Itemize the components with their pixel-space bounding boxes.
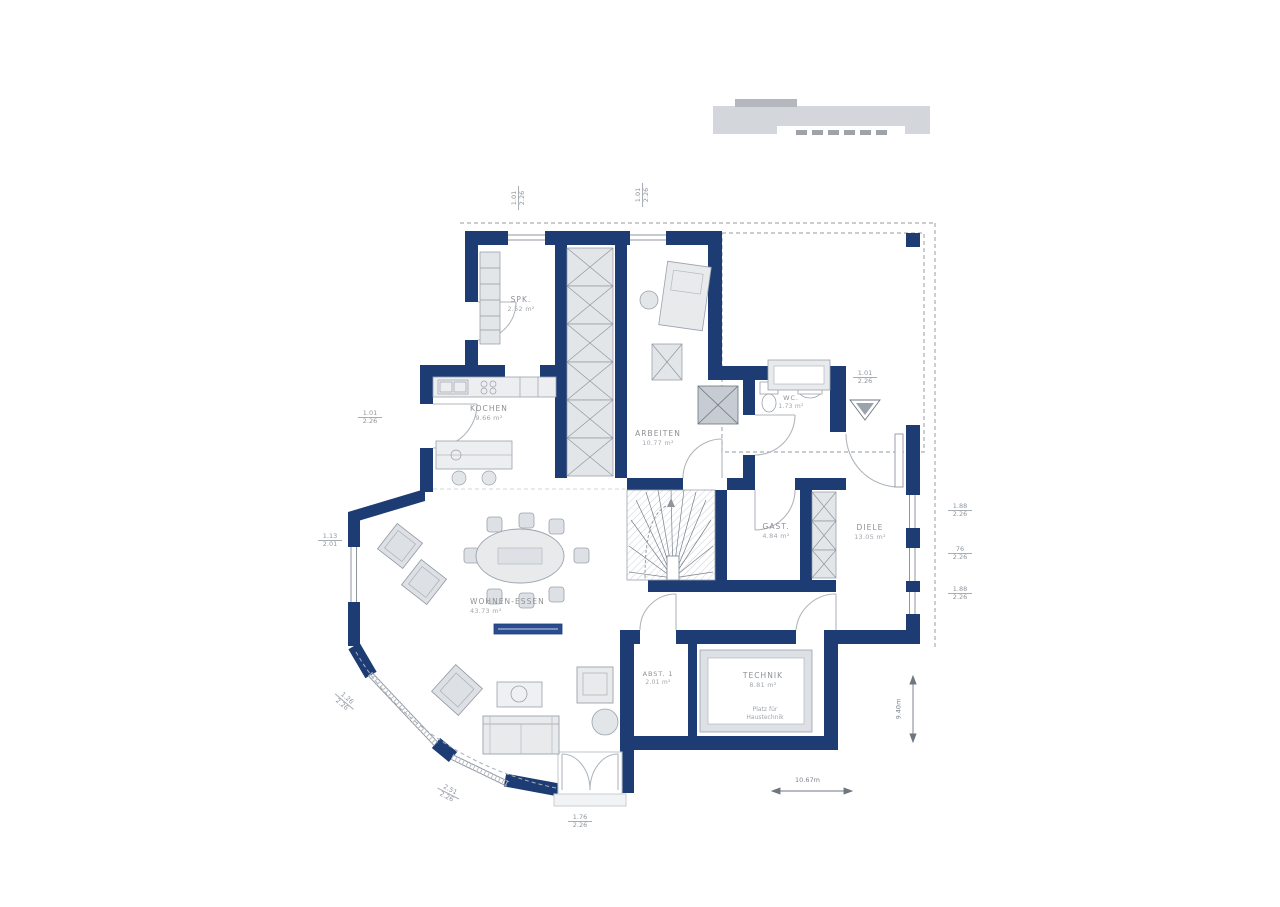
lounge-chair-1: [378, 524, 423, 569]
floor-plan-page: SPK. 2.52 m² KOCHEN 9.66 m² ARBEITEN 10.…: [0, 0, 1280, 907]
dim-value: 2.26: [948, 554, 972, 561]
floor-plan-drawing: [0, 0, 1280, 907]
dim-right-window-3: 1.88 2.26: [948, 586, 972, 602]
dim-value: 2.26: [644, 183, 651, 207]
study-shelf: [652, 344, 682, 380]
coffee-table: [497, 682, 542, 707]
armchair-square: [577, 667, 613, 703]
dim-value: 2.26: [358, 418, 382, 425]
dining-set: [464, 513, 589, 608]
armchair-rotated: [432, 665, 483, 716]
front-double-door: [554, 752, 626, 806]
office-chair: [640, 291, 658, 309]
dim-total-width: 10.67m: [795, 776, 820, 784]
hall-wardrobe: [812, 492, 836, 578]
dim-value: 2.26: [568, 822, 592, 829]
pantry-shelf: [480, 252, 500, 344]
technik-note-line2: Haustechnik: [746, 714, 783, 722]
dim-entry-door: 1.01 2.26: [853, 370, 877, 386]
dim-value: 2.26: [948, 511, 972, 518]
dim-value: 2.01: [318, 541, 342, 548]
wardrobe-column: [567, 248, 613, 476]
dim-left-door: 1.01 2.26: [358, 410, 382, 426]
sofa: [483, 716, 559, 754]
desk: [659, 261, 711, 331]
dim-right-window-2: 76 2.26: [948, 546, 972, 562]
sideboard: [494, 624, 562, 634]
dim-top-window-right: 1.01 2.26: [635, 183, 651, 207]
dim-value: 2.26: [853, 378, 877, 385]
dim-value: 2.26: [520, 186, 527, 210]
technik-note-line1: Platz für: [746, 706, 783, 714]
kitchen-counter: [433, 377, 556, 397]
kitchen-island: [436, 441, 512, 485]
terrace-post: [906, 233, 920, 247]
dim-front-door: 1.76 2.26: [568, 814, 592, 830]
side-table: [592, 709, 618, 735]
dim-left-window: 1.13 2.01: [318, 533, 342, 549]
dim-value: 2.26: [948, 594, 972, 601]
dim-total-height: 9.40m: [894, 699, 902, 720]
lounge-chair-2: [402, 560, 447, 605]
window-bench: [768, 360, 830, 390]
study-cabinet: [698, 386, 738, 424]
staircase: [627, 489, 715, 580]
dim-right-window-1: 1.88 2.26: [948, 503, 972, 519]
entry-door-leaf: [895, 434, 903, 487]
entrance-marker: [850, 400, 880, 420]
dim-top-window-left: 1.01 2.26: [511, 186, 527, 210]
technik-note: Platz für Haustechnik: [746, 706, 783, 722]
